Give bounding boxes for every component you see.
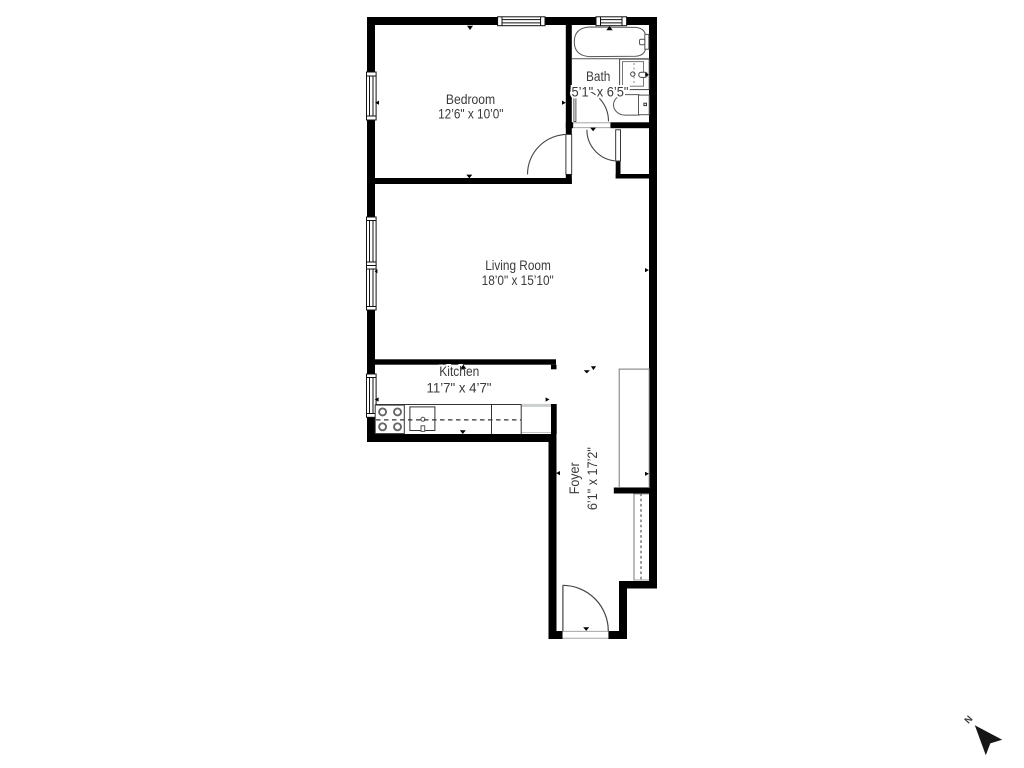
svg-text:Bedroom: Bedroom [446, 91, 495, 107]
svg-text:11’7" x 4’7": 11’7" x 4’7" [427, 380, 492, 395]
svg-text:Foyer: Foyer [566, 462, 582, 494]
svg-text:18’0" x 15’10": 18’0" x 15’10" [482, 273, 554, 288]
svg-text:12’6" x 10’0": 12’6" x 10’0" [438, 107, 504, 122]
svg-text:5’1" x 6’5": 5’1" x 6’5" [572, 85, 629, 100]
svg-text:Kitchen: Kitchen [439, 363, 479, 379]
svg-text:6’1" x 17’2": 6’1" x 17’2" [584, 447, 600, 510]
svg-text:Living Room: Living Room [485, 257, 551, 273]
svg-text:Bath: Bath [586, 68, 610, 84]
